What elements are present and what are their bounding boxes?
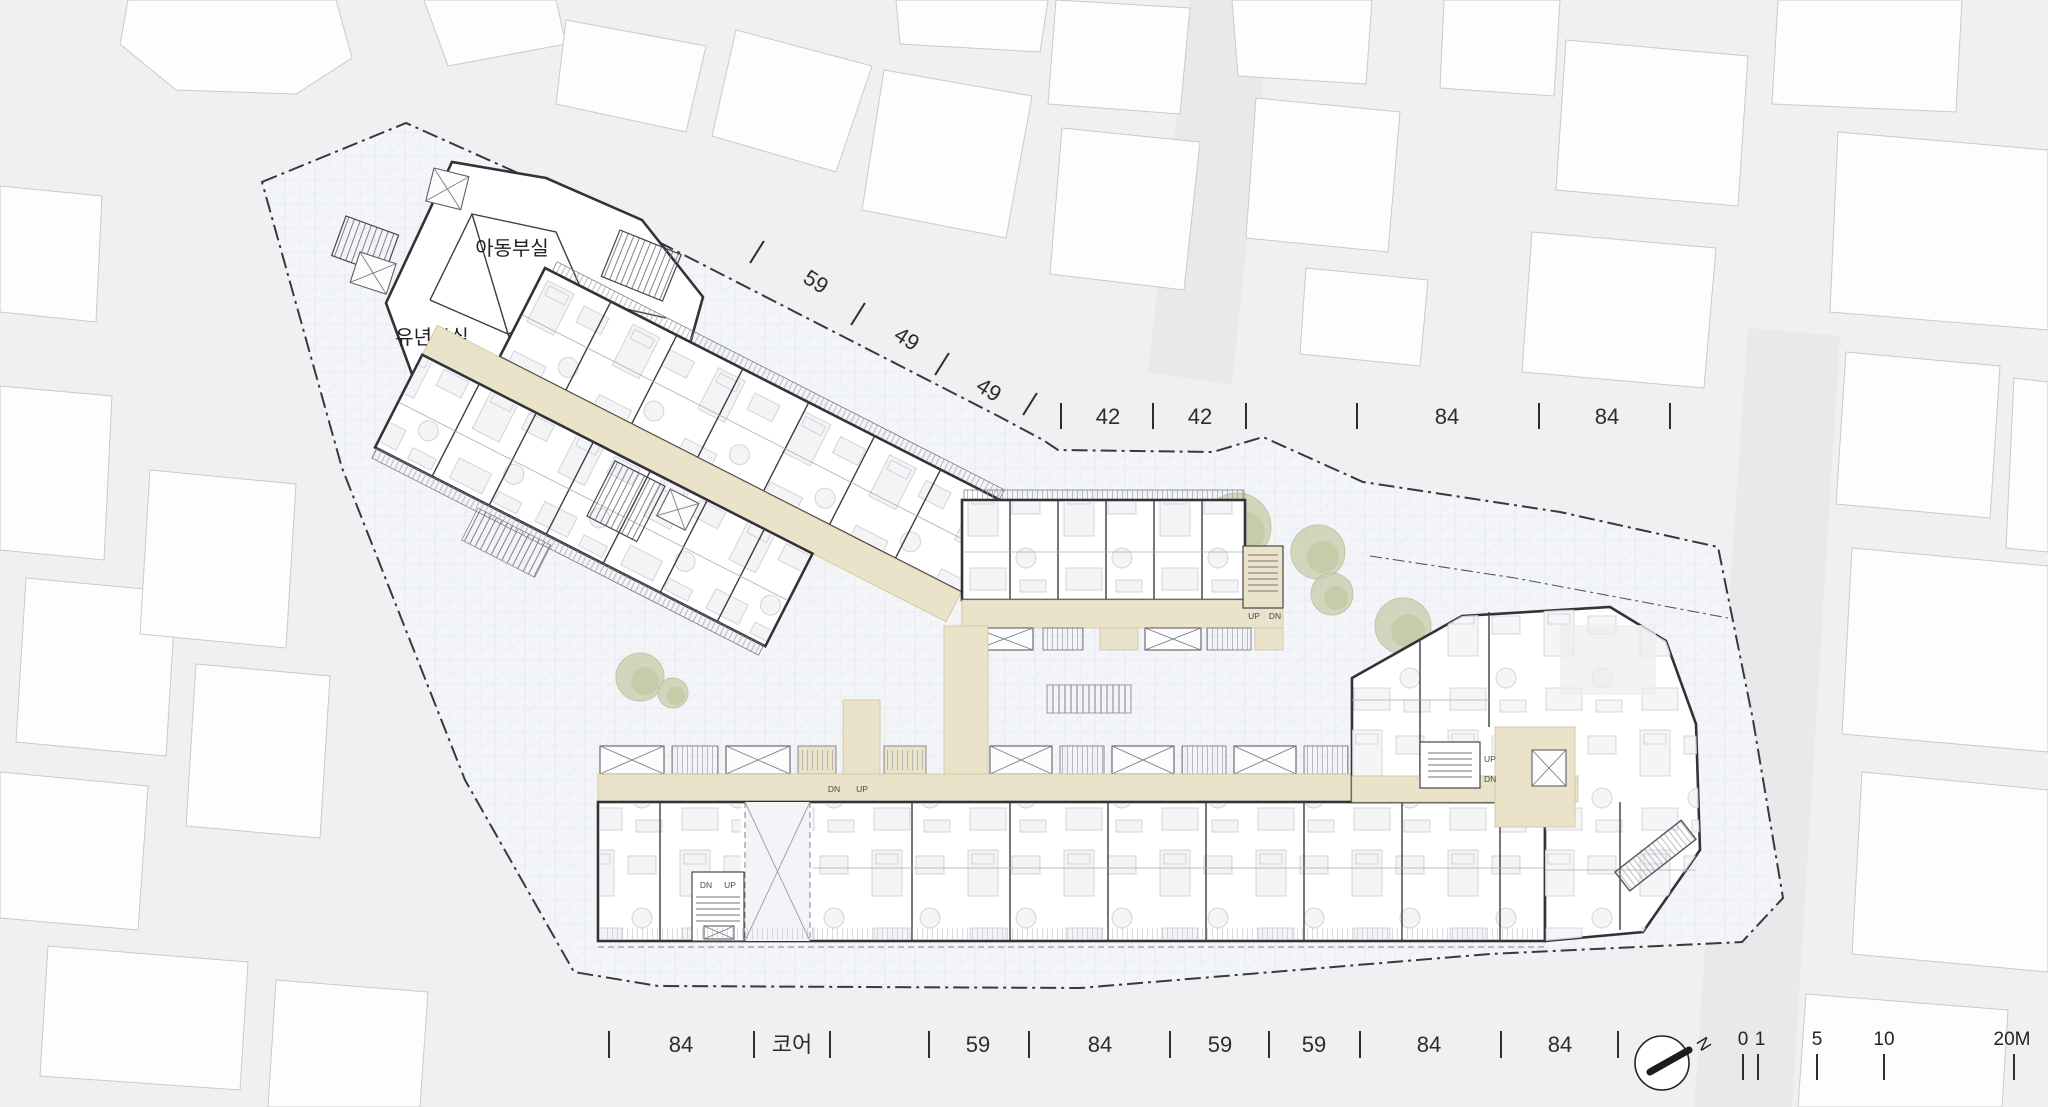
dim-label-59: 59 xyxy=(1208,1032,1232,1057)
dim-label-84: 84 xyxy=(1548,1032,1572,1057)
stair-up-label: UP xyxy=(1484,754,1496,764)
tree-icon xyxy=(1291,525,1345,579)
site-plan-page: 아동부실 목양실 유년부실 청년부실 UP DN xyxy=(0,0,2048,1107)
site-plan-drawing: 아동부실 목양실 유년부실 청년부실 UP DN xyxy=(0,0,2048,1107)
stair-dn-label: DN xyxy=(1484,774,1496,784)
dim-label-84: 84 xyxy=(1435,404,1459,429)
dim-label-42: 42 xyxy=(1188,404,1212,429)
room-label-children-room: 아동부실 xyxy=(475,237,549,260)
tree-icon xyxy=(616,653,664,701)
dim-label-84: 84 xyxy=(1088,1032,1112,1057)
middle-wing-corridor xyxy=(962,600,1283,628)
scale-label-0: 0 xyxy=(1738,1029,1749,1050)
middle-wing-balcony xyxy=(964,490,1244,500)
stair-dn-label: DN xyxy=(700,880,712,890)
east-block-elevator xyxy=(1532,750,1566,786)
dim-label-84: 84 xyxy=(1595,404,1619,429)
stair-up-label: UP xyxy=(724,880,736,890)
middle-wing-bridges xyxy=(975,628,1283,650)
middle-wing: UP DN xyxy=(962,490,1283,650)
scale-label-20m: 20M xyxy=(1994,1029,2031,1050)
stair-up-label: UP xyxy=(1248,611,1260,621)
middle-wing-stair-treads xyxy=(1248,552,1278,592)
dim-label-core: 코어 xyxy=(772,1032,812,1057)
void-lightwell xyxy=(745,802,810,941)
stair-dn-label: DN xyxy=(1269,611,1281,621)
tree-icon xyxy=(658,678,688,708)
bottom-wing-balcony xyxy=(604,928,1540,939)
middle-wing-furniture xyxy=(964,502,1243,598)
dim-label-59: 59 xyxy=(966,1032,990,1057)
scale-label-1: 1 xyxy=(1755,1029,1766,1050)
dim-label-84: 84 xyxy=(1417,1032,1441,1057)
dim-label-59: 59 xyxy=(1302,1032,1326,1057)
stair-up-label: UP xyxy=(856,784,868,794)
dim-label-42: 42 xyxy=(1096,404,1120,429)
bottom-wing-furniture xyxy=(812,804,1543,939)
scale-label-5: 5 xyxy=(1812,1029,1823,1050)
dim-label-84: 84 xyxy=(669,1032,693,1057)
tree-icon xyxy=(1311,573,1353,615)
east-block-living xyxy=(1560,625,1656,695)
scale-label-10: 10 xyxy=(1873,1029,1894,1050)
courtyard-steps xyxy=(1047,685,1131,713)
stair-dn-label: DN xyxy=(828,784,840,794)
